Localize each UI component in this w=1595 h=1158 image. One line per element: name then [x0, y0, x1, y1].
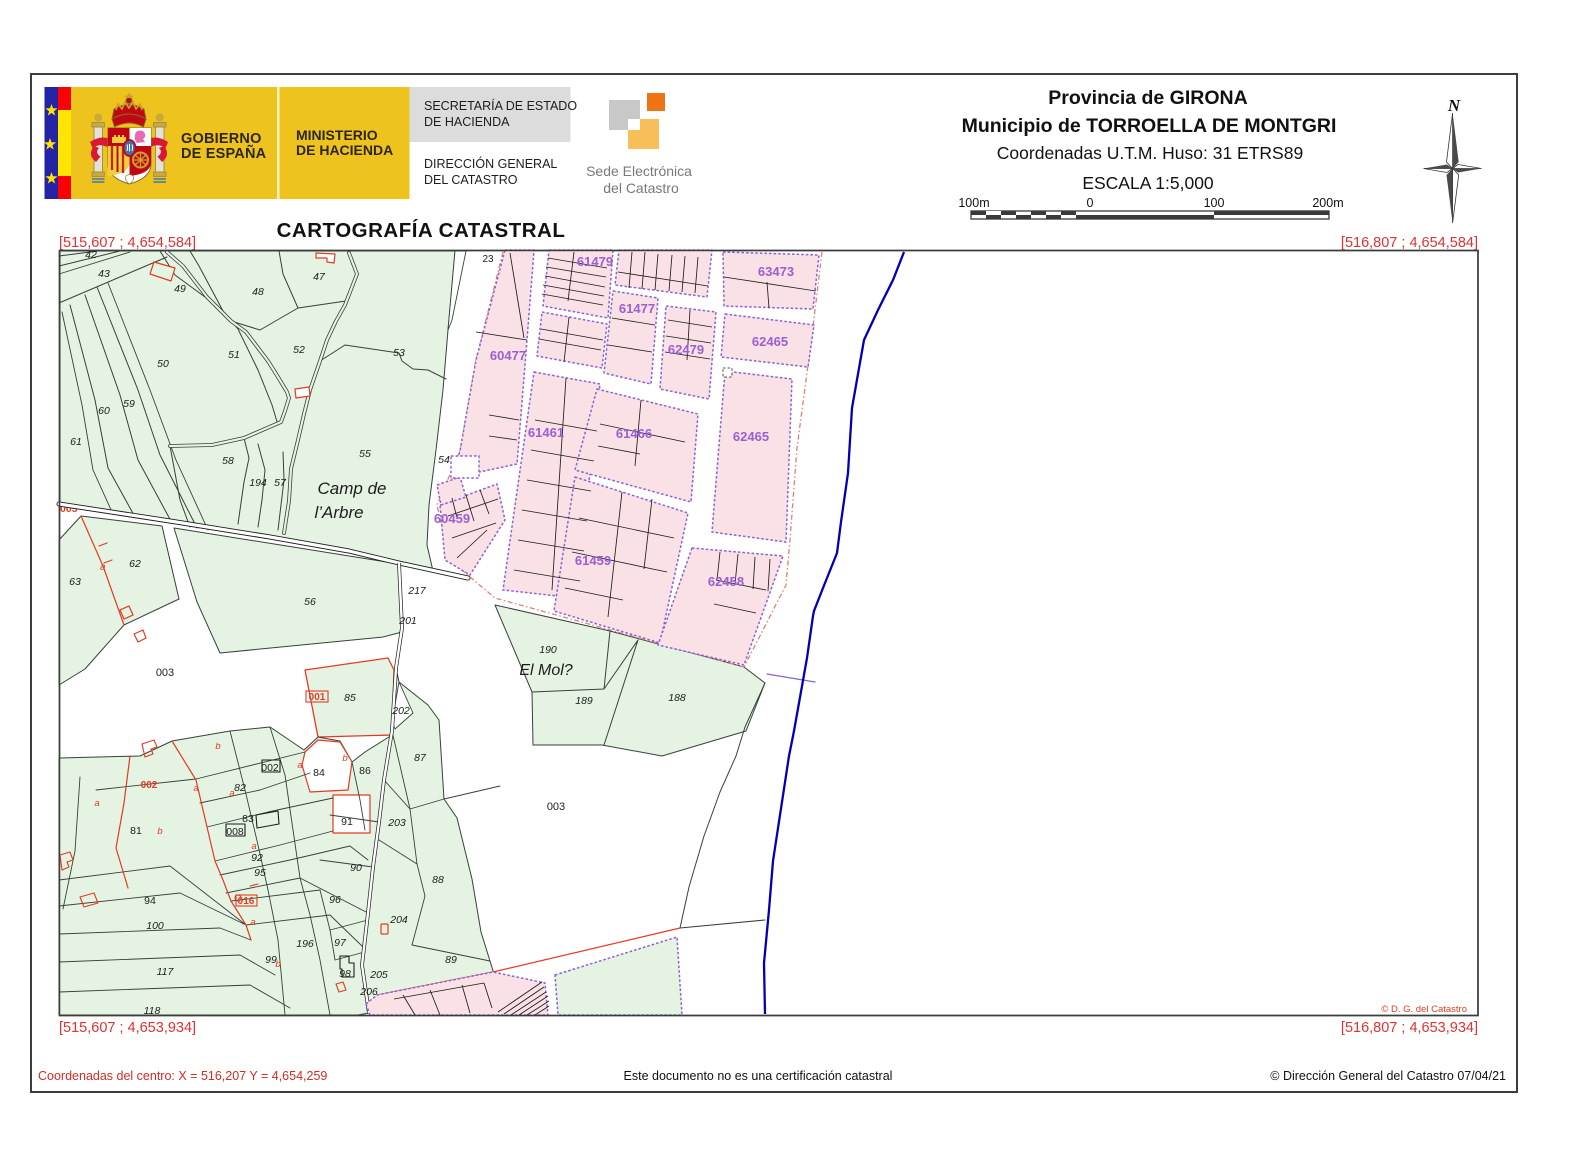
svg-text:002: 002	[141, 780, 158, 791]
svg-text:51: 51	[228, 349, 240, 361]
svg-text:190: 190	[539, 644, 557, 656]
svg-text:63473: 63473	[758, 264, 794, 279]
svg-text:50: 50	[157, 358, 169, 370]
svg-text:62: 62	[129, 558, 141, 570]
svg-text:118: 118	[144, 1005, 161, 1017]
svg-text:52: 52	[293, 344, 305, 356]
svg-text:100: 100	[146, 920, 164, 932]
svg-text:54: 54	[438, 454, 450, 466]
svg-text:95: 95	[254, 867, 266, 879]
svg-text:47: 47	[313, 271, 326, 283]
svg-text:001: 001	[309, 692, 326, 703]
svg-text:189: 189	[575, 695, 593, 707]
svg-text:56: 56	[304, 596, 316, 608]
svg-text:a: a	[251, 841, 256, 852]
svg-text:DIRECCIÓN GENERAL: DIRECCIÓN GENERAL	[424, 156, 557, 171]
svg-text:a: a	[229, 788, 234, 799]
svg-text:205: 205	[369, 969, 388, 981]
svg-text:49: 49	[174, 283, 186, 295]
svg-text:206: 206	[359, 986, 378, 998]
svg-text:202: 202	[391, 705, 410, 717]
svg-text:61466: 61466	[616, 426, 652, 441]
svg-text:61461: 61461	[528, 425, 564, 440]
svg-text:97: 97	[334, 937, 347, 949]
svg-text:201: 201	[398, 615, 417, 627]
svg-text:DEL CATASTRO: DEL CATASTRO	[424, 173, 518, 187]
svg-text:016: 016	[238, 896, 255, 907]
svg-text:43: 43	[98, 268, 110, 280]
svg-text:53: 53	[393, 347, 405, 359]
svg-text:23: 23	[482, 254, 494, 265]
svg-text:98: 98	[339, 968, 351, 980]
svg-text:217: 217	[407, 585, 427, 597]
svg-text:DE ESPAÑA: DE ESPAÑA	[181, 144, 267, 162]
svg-text:b: b	[342, 753, 347, 764]
svg-text:61459: 61459	[575, 553, 611, 568]
svg-text:89: 89	[445, 954, 457, 966]
svg-text:96: 96	[329, 894, 341, 906]
svg-text:63: 63	[69, 576, 81, 588]
svg-text:55: 55	[359, 448, 371, 460]
svg-text:003: 003	[156, 667, 174, 679]
svg-text:62465: 62465	[733, 429, 769, 444]
svg-text:61: 61	[70, 436, 82, 448]
svg-text:l’Arbre: l’Arbre	[314, 503, 363, 522]
svg-text:59: 59	[123, 398, 135, 410]
svg-text:100: 100	[1204, 196, 1225, 210]
svg-text:El Mol?: El Mol?	[519, 662, 572, 679]
svg-text:Coordenadas U.T.M. Huso: 31 ET: Coordenadas U.T.M. Huso: 31 ETRS89	[997, 143, 1303, 163]
svg-text:58: 58	[222, 455, 234, 467]
svg-text:003: 003	[547, 801, 565, 813]
svg-text:88: 88	[432, 874, 444, 886]
svg-text:del Catastro: del Catastro	[603, 180, 679, 196]
svg-text:203: 203	[387, 817, 406, 829]
svg-text:b: b	[215, 741, 220, 752]
svg-text:Sede Electrónica: Sede Electrónica	[586, 163, 692, 179]
svg-text:196: 196	[296, 938, 314, 950]
svg-text:DE HACIENDA: DE HACIENDA	[296, 142, 393, 158]
svg-text:[515,607 ; 4,654,584]: [515,607 ; 4,654,584]	[59, 235, 196, 251]
svg-text:b: b	[275, 959, 280, 970]
svg-text:81: 81	[130, 825, 142, 837]
svg-text:85: 85	[344, 692, 356, 704]
svg-text:N: N	[1447, 96, 1461, 115]
svg-text:a: a	[250, 917, 255, 928]
svg-text:200m: 200m	[1312, 196, 1343, 210]
svg-text:61479: 61479	[577, 254, 613, 269]
svg-text:GOBIERNO: GOBIERNO	[181, 131, 262, 147]
svg-text:91: 91	[341, 816, 353, 828]
svg-text:94: 94	[144, 895, 156, 907]
svg-text:42: 42	[85, 249, 97, 261]
svg-text:62465: 62465	[752, 334, 788, 349]
svg-text:Camp de: Camp de	[318, 479, 387, 498]
svg-text:87: 87	[414, 752, 427, 764]
svg-text:a: a	[297, 760, 302, 771]
svg-text:60459: 60459	[434, 511, 470, 526]
svg-text:194: 194	[249, 477, 267, 489]
svg-text:MINISTERIO: MINISTERIO	[296, 127, 378, 143]
svg-text:b: b	[157, 826, 162, 837]
svg-text:57: 57	[274, 477, 287, 489]
svg-text:[516,807 ; 4,654,584]: [516,807 ; 4,654,584]	[1341, 235, 1478, 251]
svg-text:204: 204	[389, 914, 408, 926]
svg-text:62458: 62458	[708, 574, 744, 589]
svg-text:[516,807 ; 4,653,934]: [516,807 ; 4,653,934]	[1341, 1020, 1478, 1036]
svg-text:a: a	[94, 798, 99, 809]
svg-text:a: a	[193, 783, 198, 794]
svg-text:117: 117	[157, 966, 175, 978]
svg-text:© D. G. del Catastro: © D. G. del Catastro	[1381, 1004, 1467, 1015]
svg-text:83: 83	[242, 813, 254, 825]
svg-text:82: 82	[234, 782, 246, 794]
svg-text:Provincia de GIRONA: Provincia de GIRONA	[1048, 87, 1247, 109]
svg-text:DE HACIENDA: DE HACIENDA	[424, 115, 510, 129]
svg-text:© Dirección General del Catast: © Dirección General del Catastro 07/04/2…	[1270, 1069, 1506, 1083]
svg-text:100m: 100m	[958, 196, 989, 210]
svg-text:92: 92	[251, 852, 263, 864]
svg-text:CARTOGRAFÍA CATASTRAL: CARTOGRAFÍA CATASTRAL	[277, 219, 566, 242]
svg-text:62479: 62479	[668, 342, 704, 357]
svg-text:60: 60	[98, 405, 110, 417]
svg-text:ESCALA 1:5,000: ESCALA 1:5,000	[1082, 173, 1214, 193]
svg-text:48: 48	[252, 286, 264, 298]
svg-text:a: a	[100, 562, 106, 573]
svg-text:[515,607 ; 4,653,934]: [515,607 ; 4,653,934]	[59, 1020, 196, 1036]
svg-text:002: 002	[261, 762, 279, 774]
svg-text:SECRETARÍA DE ESTADO: SECRETARÍA DE ESTADO	[424, 98, 577, 113]
svg-text:0: 0	[1087, 196, 1094, 210]
svg-text:90: 90	[350, 862, 362, 874]
svg-text:86: 86	[359, 765, 371, 777]
svg-text:Este documento no es una certi: Este documento no es una certificación c…	[624, 1069, 893, 1083]
svg-text:61477: 61477	[619, 301, 655, 316]
svg-text:Municipio de TORROELLA DE MONT: Municipio de TORROELLA DE MONTGRI	[962, 115, 1337, 137]
svg-text:008: 008	[226, 826, 244, 838]
svg-text:Coordenadas del centro: X = 51: Coordenadas del centro: X = 516,207 Y = …	[38, 1069, 327, 1083]
svg-text:84: 84	[313, 767, 325, 779]
svg-text:188: 188	[668, 692, 686, 704]
svg-text:60477: 60477	[490, 348, 526, 363]
